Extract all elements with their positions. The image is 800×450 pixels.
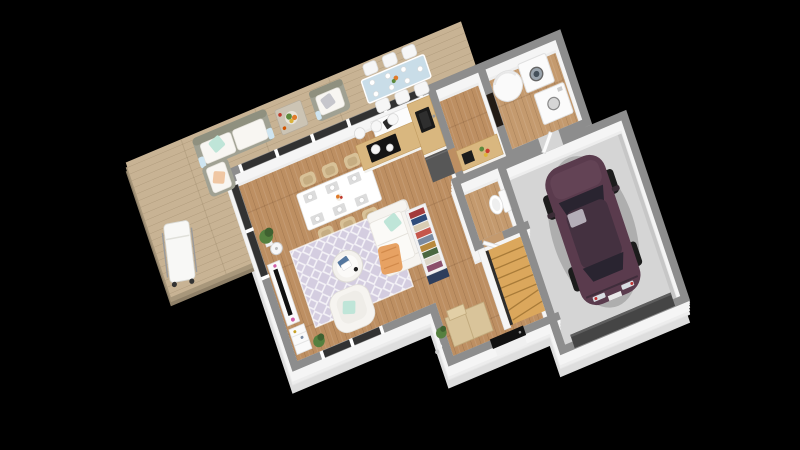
peach-pillow: [213, 171, 226, 184]
floor-plan-canvas: [0, 0, 800, 450]
floor-plan-svg: [0, 0, 800, 450]
mint-cushion-armchair: [343, 300, 356, 314]
